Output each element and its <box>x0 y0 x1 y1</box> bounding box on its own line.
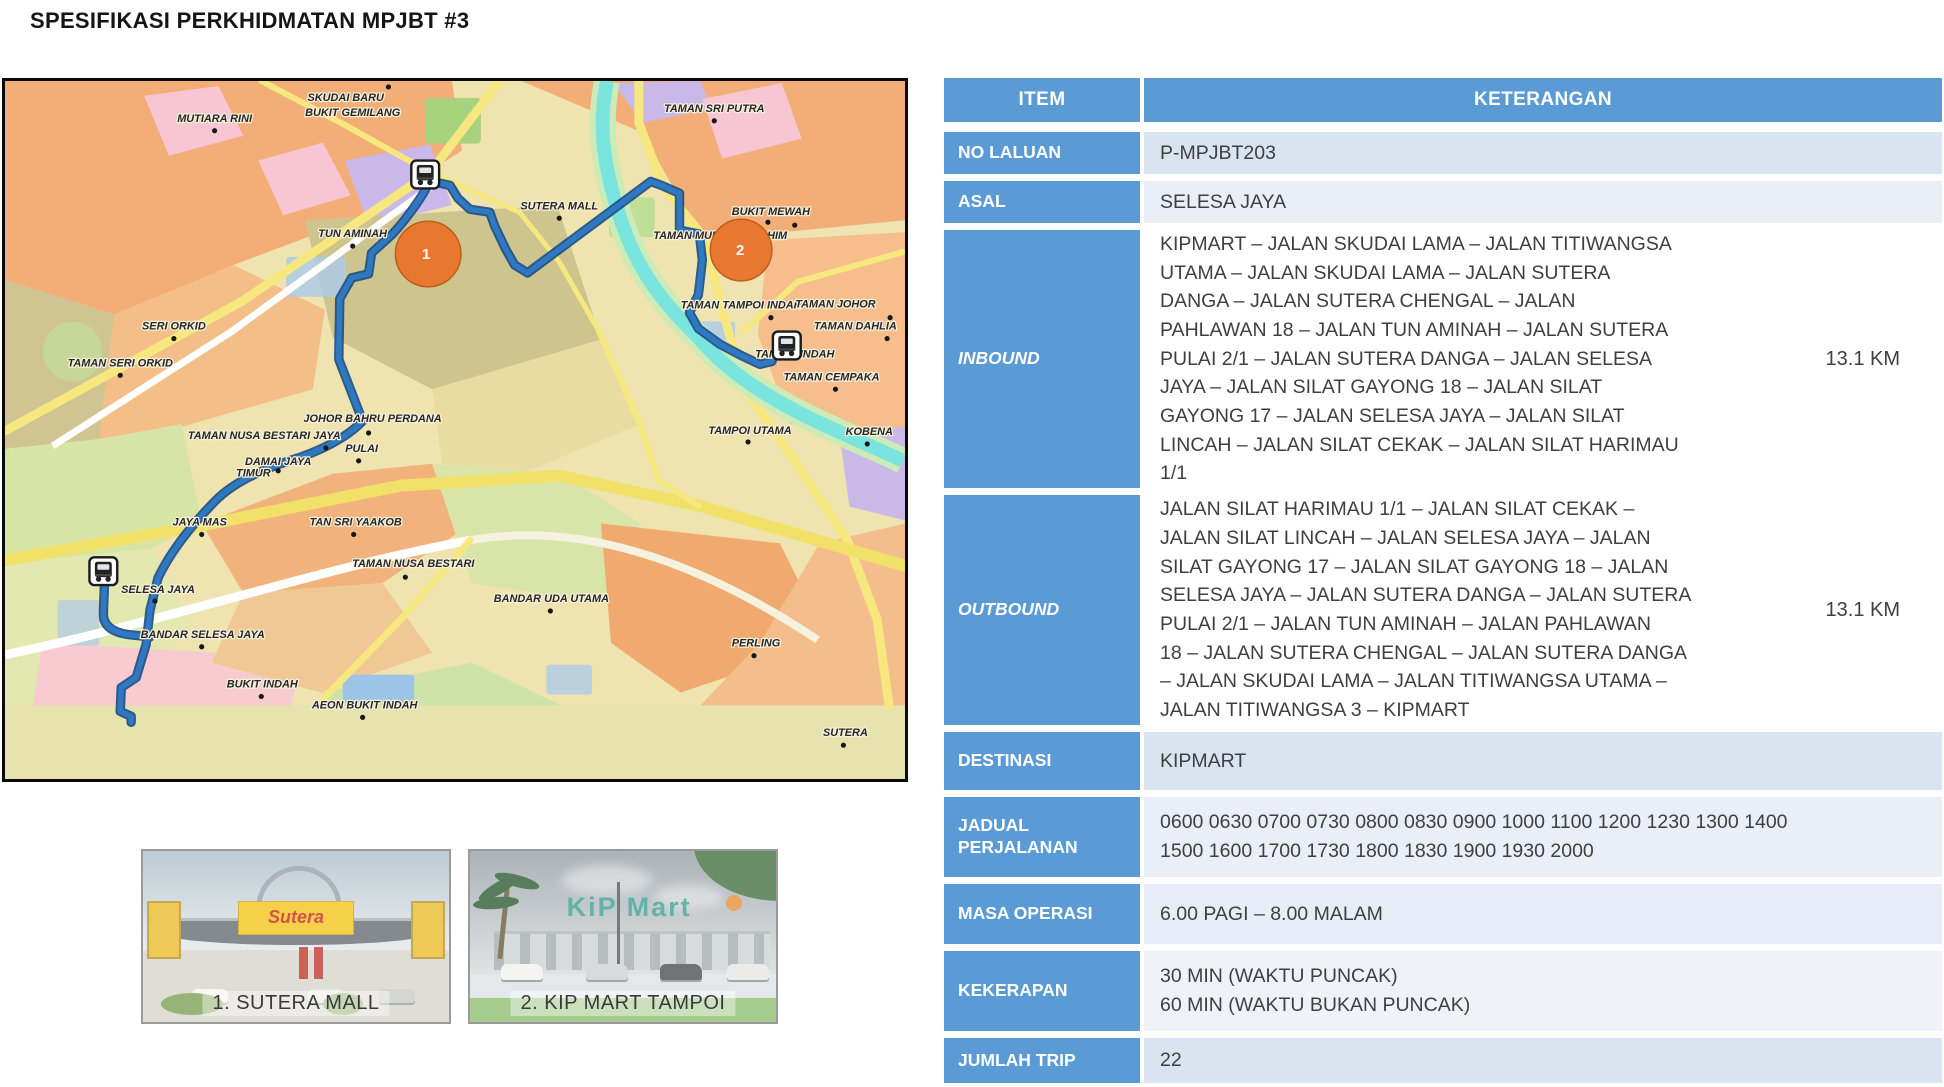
bus-stop-icon <box>89 557 117 585</box>
row-label-kekerapan: KEKERAPAN <box>944 951 1140 1031</box>
row-value-asal: SELESA JAYA <box>1144 181 1942 223</box>
row-label-destinasi: DESTINASI <box>944 732 1140 790</box>
map-label: TAMAN NUSA BESTARI JAYA <box>188 430 341 442</box>
map-label: TAMAN SRI PUTRA <box>664 103 765 115</box>
map-label: TIMUR <box>236 468 271 480</box>
row-label-inbound: INBOUND <box>944 230 1140 488</box>
page-title: SPESIFIKASI PERKHIDMATAN MPJBT #3 <box>30 8 469 34</box>
table-row: MASA OPERASI 6.00 PAGI – 8.00 MALAM <box>944 884 1942 944</box>
route-map: SKUDAI BARU BUKIT GEMILANG MUTIARA RINI … <box>2 78 908 782</box>
map-label: TUN AMINAH <box>318 228 388 240</box>
row-label-jadual-perjalanan: JADUAL PERJALANAN <box>944 797 1140 877</box>
row-value-destinasi: KIPMART <box>1144 732 1942 790</box>
stop-number: 2 <box>736 243 744 259</box>
column-header-keterangan: KETERANGAN <box>1144 78 1942 122</box>
map-label: SERI ORKID <box>142 321 206 333</box>
map-label: SELESA JAYA <box>121 584 195 596</box>
row-value-outbound: JALAN SILAT HARIMAU 1/1 – JALAN SILAT CE… <box>1144 495 1942 725</box>
bus-stop-icon <box>411 161 439 189</box>
map-label: TAMAN JOHOR <box>795 299 876 311</box>
row-value-jumlah-trip: 22 <box>1144 1038 1942 1083</box>
row-value-kekerapan: 30 MIN (WAKTU PUNCAK) 60 MIN (WAKTU BUKA… <box>1144 951 1942 1031</box>
map-label: PULAI <box>345 443 379 455</box>
photo-caption: 1. SUTERA MALL <box>202 991 389 1016</box>
table-row: OUTBOUND JALAN SILAT HARIMAU 1/1 – JALAN… <box>944 495 1942 725</box>
map-label: SKUDAI BARU <box>308 92 386 104</box>
row-label-asal: ASAL <box>944 181 1140 223</box>
row-label-jumlah-trip: JUMLAH TRIP <box>944 1038 1140 1083</box>
map-label: TAMPOI UTAMA <box>708 425 791 437</box>
map-label: TAMAN TAMPOI INDAH <box>681 300 803 312</box>
table-header-row: ITEM KETERANGAN <box>944 78 1942 122</box>
table-row: KEKERAPAN 30 MIN (WAKTU PUNCAK) 60 MIN (… <box>944 951 1942 1031</box>
route-stop-marker-1: 1 <box>395 221 461 287</box>
map-label: BUKIT INDAH <box>227 679 299 691</box>
map-label: DAMAI JAYA <box>245 456 311 468</box>
map-label: JOHOR BAHRU PERDANA <box>303 413 441 425</box>
map-label: TAMAN SERI ORKID <box>68 357 173 369</box>
table-row: NO LALUAN P-MPJBT203 <box>944 132 1942 174</box>
row-label-outbound: OUTBOUND <box>944 495 1140 725</box>
stop-number: 1 <box>422 247 430 263</box>
map-label: BUKIT GEMILANG <box>305 107 401 119</box>
table-row: ASAL SELESA JAYA <box>944 181 1942 223</box>
map-label: AEON BUKIT INDAH <box>311 699 419 711</box>
row-value-no-laluan: P-MPJBT203 <box>1144 132 1942 174</box>
spec-table: ITEM KETERANGAN NO LALUAN P-MPJBT203 ASA… <box>944 78 1942 1087</box>
map-label: BANDAR SELESA JAYA <box>141 629 265 641</box>
column-header-item: ITEM <box>944 78 1140 122</box>
route-stop-marker-2: 2 <box>710 219 772 281</box>
map-label: TAN SRI YAAKOB <box>310 516 402 528</box>
map-label: BUKIT MEWAH <box>732 206 811 218</box>
map-label: JAYA MAS <box>173 516 228 528</box>
bus-stop-icon <box>773 332 801 360</box>
map-label: SUTERA MALL <box>520 200 598 212</box>
photo-sutera-mall: Sutera 1. SUTERA MALL <box>141 849 451 1024</box>
map-label: TAMAN DAHLIA <box>814 321 897 333</box>
map-label: SUTERA <box>823 727 868 739</box>
row-value-inbound: KIPMART – JALAN SKUDAI LAMA – JALAN TITI… <box>1144 230 1942 488</box>
row-value-jadual-perjalanan: 0600 0630 0700 0730 0800 0830 0900 1000 … <box>1144 797 1942 877</box>
map-label: MUTIARA RINI <box>177 113 253 125</box>
table-row: JADUAL PERJALANAN 0600 0630 0700 0730 08… <box>944 797 1942 877</box>
map-label: KOBENA <box>846 426 893 438</box>
row-label-masa-operasi: MASA OPERASI <box>944 884 1140 944</box>
row-label-no-laluan: NO LALUAN <box>944 132 1140 174</box>
map-label: BANDAR UDA UTAMA <box>494 593 609 605</box>
row-value-masa-operasi: 6.00 PAGI – 8.00 MALAM <box>1144 884 1942 944</box>
slide: SPESIFIKASI PERKHIDMATAN MPJBT #3 <box>0 0 1944 1087</box>
table-row: JUMLAH TRIP 22 <box>944 1038 1942 1083</box>
map-label: TAMAN CEMPAKA <box>783 371 879 383</box>
inbound-distance: 13.1 KM <box>1826 348 1942 371</box>
table-row: DESTINASI KIPMART <box>944 732 1942 790</box>
map-label: PERLING <box>732 638 781 650</box>
photo-caption: 2. KIP MART TAMPOI <box>511 991 736 1016</box>
table-row: INBOUND KIPMART – JALAN SKUDAI LAMA – JA… <box>944 230 1942 488</box>
outbound-distance: 13.1 KM <box>1826 599 1942 622</box>
photo-kip-mart-tampoi: KiP Mart 2. KIP MART TAMPOI <box>468 849 778 1024</box>
map-label: TAMAN NUSA BESTARI <box>352 558 475 570</box>
